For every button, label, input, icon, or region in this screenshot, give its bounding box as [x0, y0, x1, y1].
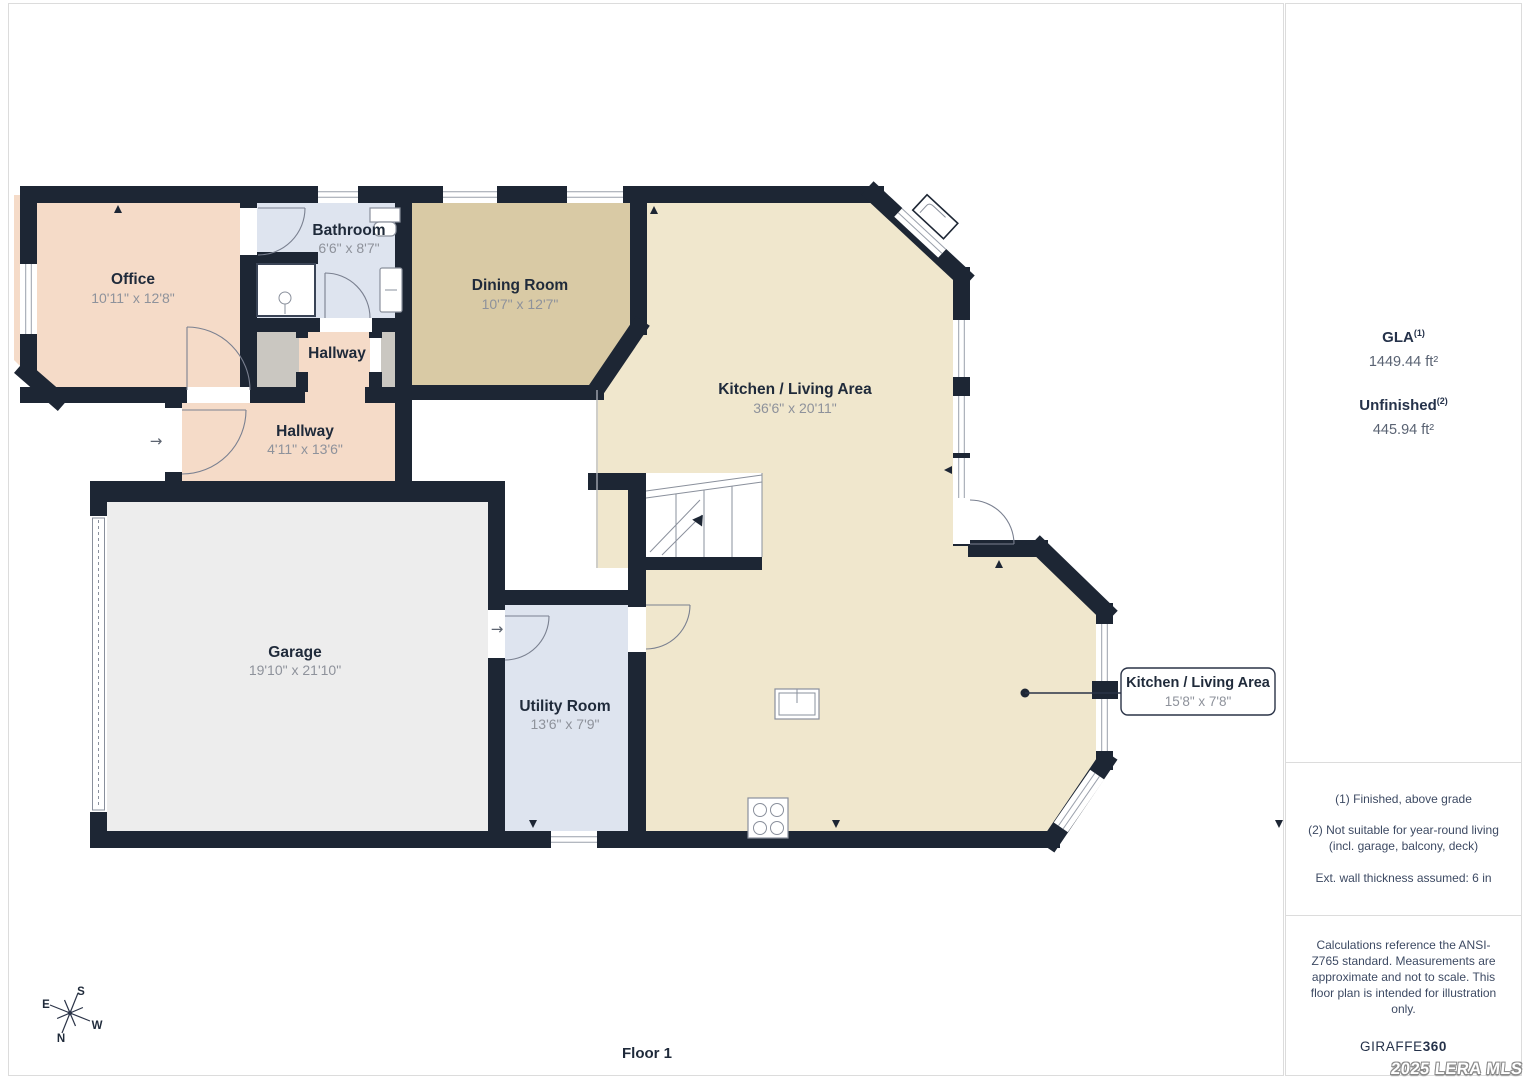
utility-arrow-icon: → [491, 620, 504, 638]
stove [748, 798, 788, 838]
compass-west: W [92, 1020, 103, 1032]
garage-dims: 19'10" x 21'10" [249, 662, 341, 678]
hallway-label: Hallway [276, 423, 334, 440]
compass-south: S [77, 986, 85, 998]
info-panel: GLA(1) 1449.44 ft² Unfinished(2) 445.94 … [1285, 3, 1522, 1076]
gla-footnote-ref: (1) [1414, 328, 1425, 338]
window-bay-2 [1096, 699, 1113, 751]
gla-heading: GLA(1) [1382, 328, 1425, 346]
kitchen-sink [775, 689, 819, 719]
window-top-2 [443, 186, 497, 203]
kitchen-label: Kitchen / Living Area [718, 381, 872, 398]
unfinished-heading: Unfinished(2) [1359, 396, 1448, 414]
compass-north: N [57, 1033, 65, 1045]
footnote-1: (1) Finished, above grade [1335, 792, 1472, 808]
callout-room-dims: 15'8" x 7'8" [1165, 694, 1232, 709]
window-bay-1 [1096, 624, 1113, 681]
unfinished-value: 445.94 ft² [1373, 422, 1434, 438]
kitchen-dims: 36'6" x 20'11" [753, 400, 837, 416]
dimension-tick-icon [1275, 820, 1283, 828]
footnote-3: Ext. wall thickness assumed: 6 in [1315, 871, 1491, 887]
upper-hallway-label: Hallway [308, 345, 366, 362]
bathroom-label: Bathroom [312, 222, 385, 239]
dining-dims: 10'7" x 12'7" [482, 296, 559, 312]
bathroom-sink [380, 268, 402, 312]
footnote-2: (2) Not suitable for year-round living (… [1300, 823, 1507, 854]
utility-dims: 13'6" x 7'9" [531, 716, 600, 732]
gla-value: 1449.44 ft² [1369, 354, 1438, 370]
hallway-floor [170, 390, 412, 490]
shower [257, 264, 315, 316]
office-dims: 10'11" x 12'8" [91, 290, 175, 306]
compass-east: E [42, 999, 50, 1011]
window-office-left [20, 264, 37, 334]
garage-door [90, 516, 107, 812]
window-top-3 [567, 186, 623, 203]
callout-room-name: Kitchen / Living Area [1126, 675, 1271, 691]
disclaimer-text: Calculations reference the ANSI-Z765 sta… [1304, 937, 1504, 1018]
compass-rose: S E W N [42, 986, 102, 1045]
utility-label: Utility Room [519, 698, 610, 715]
staircase [646, 473, 762, 557]
unfinished-footnote-ref: (2) [1437, 396, 1448, 406]
entry-arrow-icon: → [150, 432, 163, 450]
giraffe360-logo: GIRAFFE360 [1360, 1039, 1447, 1054]
garage-label: Garage [268, 644, 322, 661]
office-label: Office [111, 271, 155, 288]
mls-watermark: 2025 LERA MLS [1390, 1060, 1524, 1079]
floor-title: Floor 1 [577, 1045, 717, 1062]
dining-label: Dining Room [472, 277, 568, 294]
window-right-1 [953, 320, 970, 377]
hallway-dims: 4'11" x 13'6" [267, 441, 343, 457]
window-right-2 [953, 396, 970, 453]
kitchen-exterior-door [953, 498, 1014, 544]
footnotes-section: (1) Finished, above grade (2) Not suitab… [1286, 762, 1521, 915]
window-right-3 [953, 458, 970, 498]
legal-section: Calculations reference the ANSI-Z765 sta… [1286, 915, 1521, 1075]
floorplan-drawing: → → Office 10'11" x 12'8" Bathroom 6'6" … [0, 0, 1290, 1080]
area-stats-section: GLA(1) 1449.44 ft² Unfinished(2) 445.94 … [1286, 4, 1521, 762]
bathroom-dims: 6'6" x 8'7" [318, 240, 379, 256]
window-utility-bottom [551, 831, 597, 848]
window-top-1 [318, 186, 358, 203]
